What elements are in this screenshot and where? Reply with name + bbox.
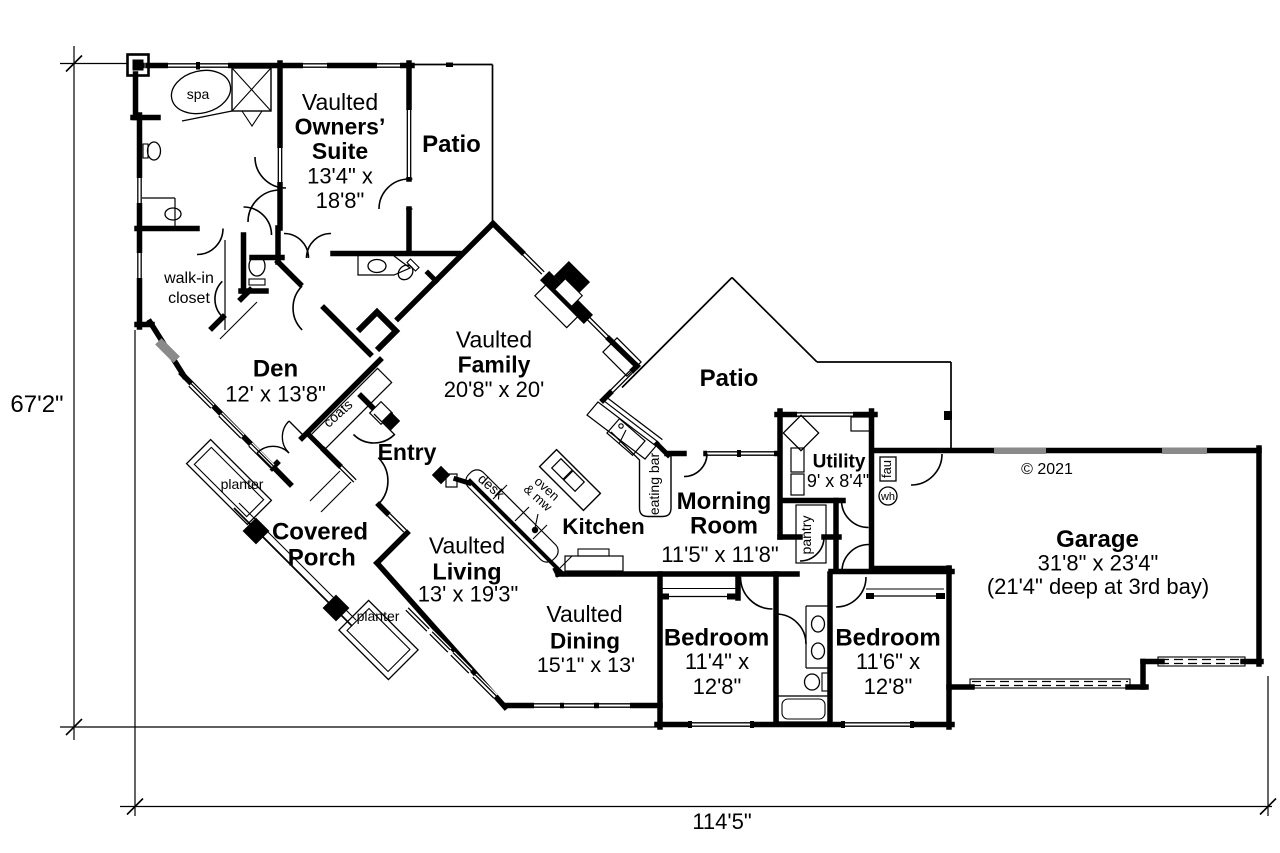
svg-text:13'4" x: 13'4" x bbox=[307, 164, 373, 189]
svg-text:Kitchen: Kitchen bbox=[562, 514, 645, 539]
svg-text:Bedroom: Bedroom bbox=[664, 625, 769, 652]
svg-text:Vaulted: Vaulted bbox=[429, 533, 505, 559]
svg-text:67'2": 67'2" bbox=[10, 391, 63, 418]
svg-text:15'1" x 13': 15'1" x 13' bbox=[537, 653, 635, 677]
svg-text:9' x 8'4": 9' x 8'4" bbox=[807, 471, 869, 491]
svg-text:(21'4" deep at 3rd bay): (21'4" deep at 3rd bay) bbox=[987, 574, 1209, 599]
svg-text:31'8" x 23'4": 31'8" x 23'4" bbox=[1038, 551, 1159, 576]
svg-text:Vaulted: Vaulted bbox=[546, 601, 622, 627]
svg-text:Entry: Entry bbox=[378, 439, 437, 465]
svg-text:Covered: Covered bbox=[272, 519, 368, 546]
svg-text:114'5": 114'5" bbox=[692, 809, 751, 834]
svg-text:Patio: Patio bbox=[422, 131, 481, 158]
svg-text:Utility: Utility bbox=[813, 452, 866, 473]
svg-text:Vaulted: Vaulted bbox=[302, 89, 378, 115]
svg-text:Bedroom: Bedroom bbox=[835, 625, 940, 652]
svg-text:walk-in: walk-in bbox=[163, 270, 214, 287]
svg-text:© 2021: © 2021 bbox=[1021, 461, 1073, 478]
svg-text:closet: closet bbox=[168, 290, 210, 307]
svg-text:12'8": 12'8" bbox=[864, 674, 913, 699]
svg-text:Morning: Morning bbox=[677, 488, 772, 515]
svg-text:Vaulted: Vaulted bbox=[456, 327, 532, 353]
svg-text:Dining: Dining bbox=[550, 629, 620, 654]
svg-text:Porch: Porch bbox=[288, 545, 356, 572]
svg-text:pantry: pantry bbox=[798, 516, 814, 555]
svg-text:spa: spa bbox=[187, 86, 210, 102]
svg-text:eating bar: eating bar bbox=[646, 453, 662, 516]
svg-text:Owners’: Owners’ bbox=[295, 114, 386, 140]
svg-text:Garage: Garage bbox=[1056, 526, 1139, 553]
svg-text:Family: Family bbox=[458, 352, 531, 378]
svg-text:wh: wh bbox=[880, 491, 895, 503]
svg-text:planter: planter bbox=[357, 608, 400, 624]
svg-text:18'8": 18'8" bbox=[316, 188, 365, 213]
svg-text:11'4" x: 11'4" x bbox=[685, 649, 749, 674]
svg-text:11'5" x 11'8": 11'5" x 11'8" bbox=[661, 542, 778, 567]
svg-text:11'6" x: 11'6" x bbox=[856, 649, 920, 674]
svg-text:fau: fau bbox=[879, 460, 894, 478]
svg-text:Suite: Suite bbox=[312, 138, 368, 164]
svg-text:12'8": 12'8" bbox=[693, 674, 742, 699]
svg-text:Room: Room bbox=[690, 513, 758, 540]
svg-text:20'8" x 20': 20'8" x 20' bbox=[444, 377, 545, 402]
svg-text:12' x 13'8": 12' x 13'8" bbox=[225, 382, 326, 407]
svg-text:13' x 19'3": 13' x 19'3" bbox=[418, 582, 519, 607]
svg-text:Den: Den bbox=[253, 356, 298, 383]
svg-text:Patio: Patio bbox=[700, 365, 759, 392]
svg-text:planter: planter bbox=[221, 476, 264, 492]
